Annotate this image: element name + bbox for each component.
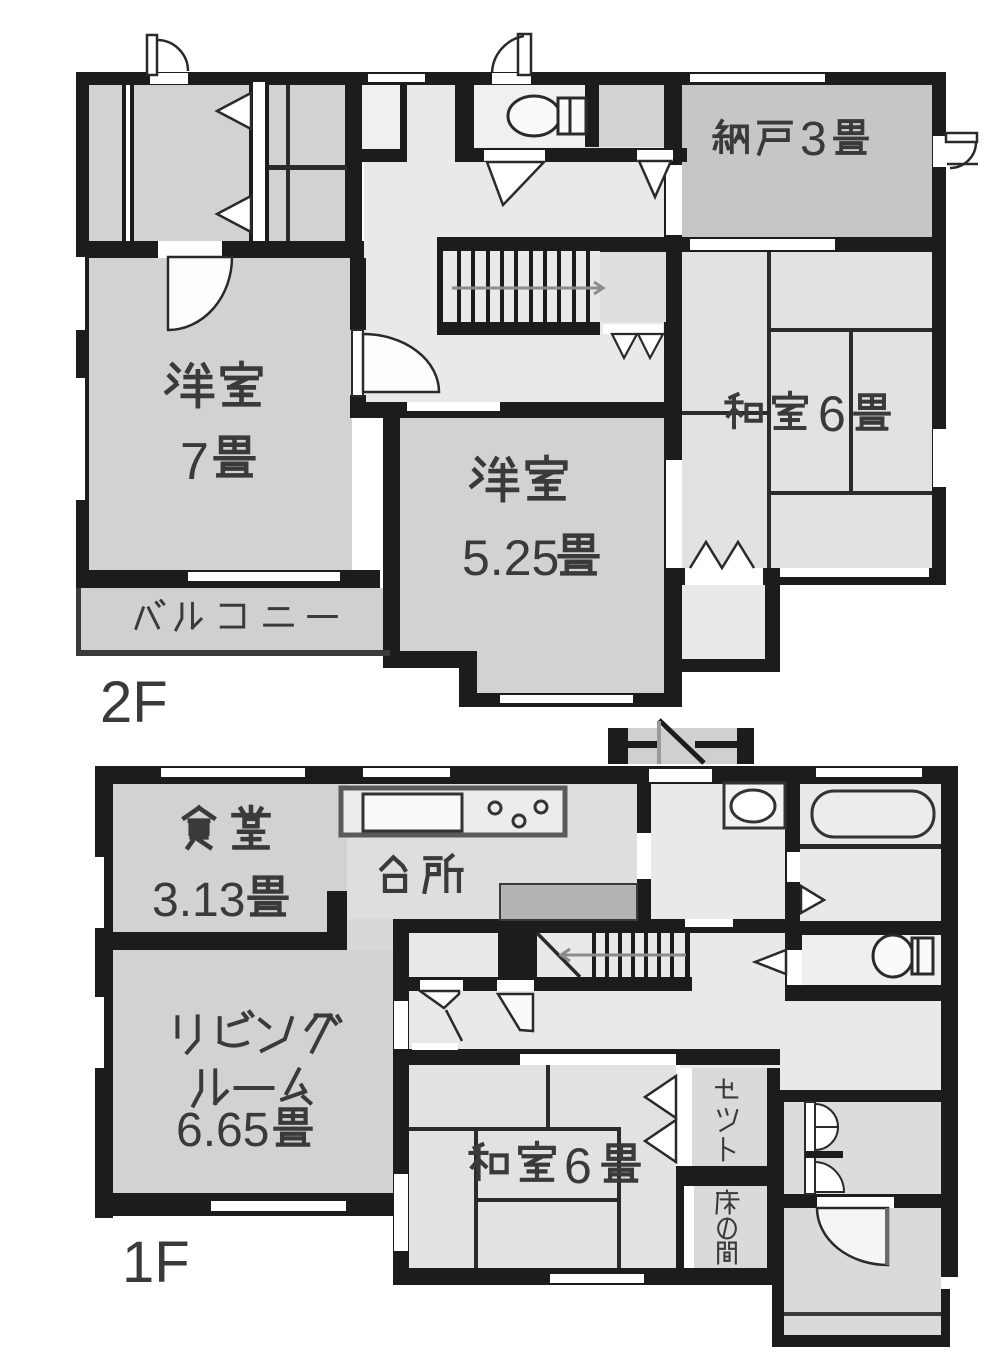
svg-text:3: 3	[800, 113, 827, 166]
svg-text:6: 6	[564, 1138, 592, 1194]
svg-text:6.65: 6.65	[176, 1104, 269, 1157]
svg-text:1F: 1F	[122, 1230, 190, 1295]
svg-text:6: 6	[818, 386, 846, 442]
svg-text:7: 7	[180, 433, 209, 491]
svg-text:5.25: 5.25	[462, 530, 559, 586]
svg-text:3.13: 3.13	[152, 874, 245, 927]
svg-text:2F: 2F	[100, 670, 168, 735]
